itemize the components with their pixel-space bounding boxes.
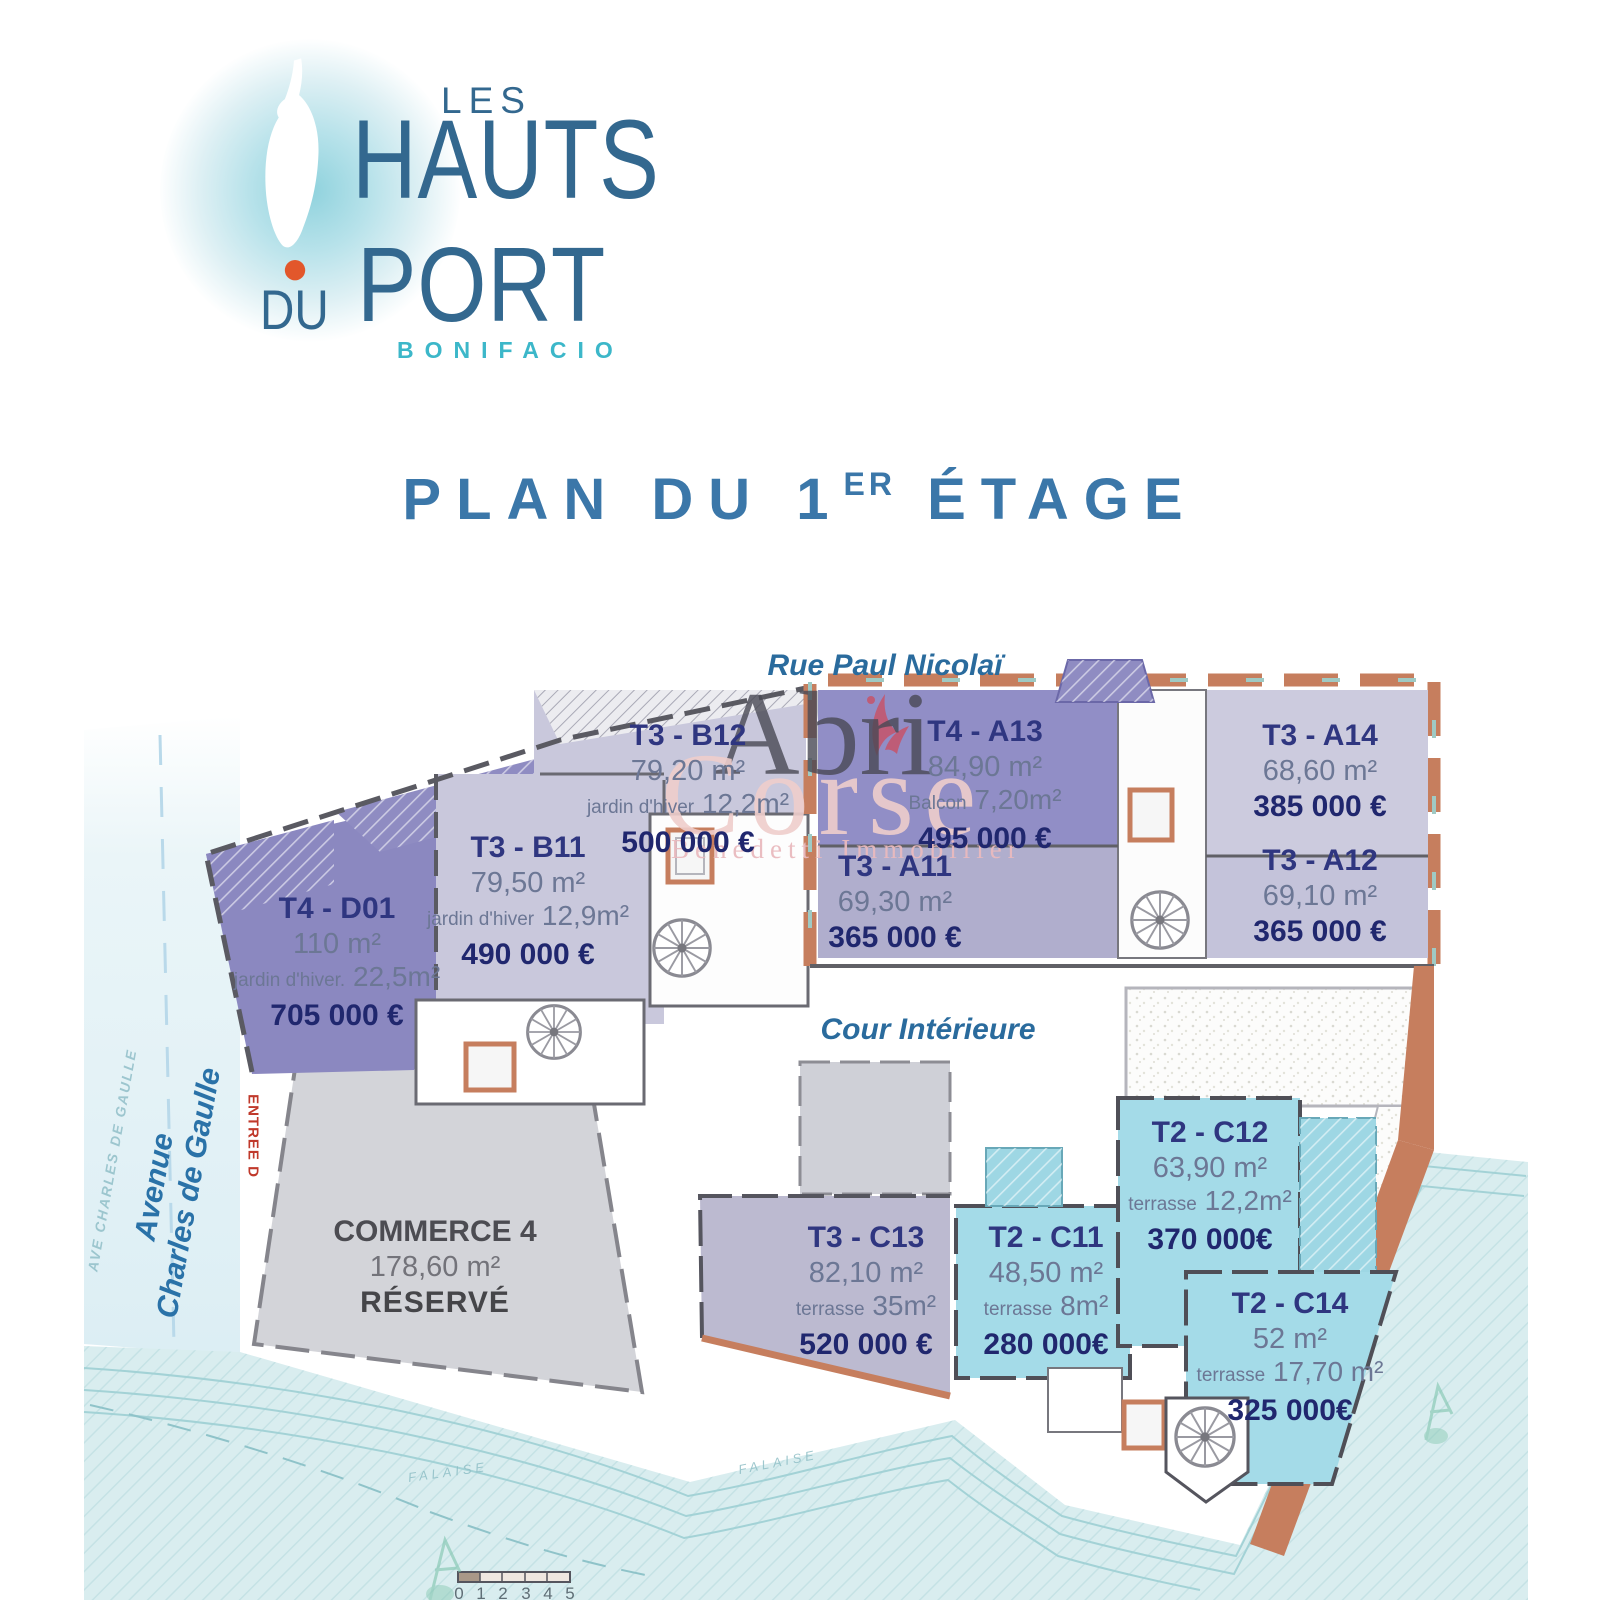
unit-extra: jardin d'hiver. 22,5m² [234,961,440,997]
unit-area: 63,90 m² [1128,1151,1292,1185]
unit-price: 520 000 € [796,1326,936,1364]
scale-tick-2: 2 [498,1584,507,1600]
unit-extra-value: 7,20m² [974,784,1061,815]
scale-tick-1: 1 [476,1584,485,1600]
unit-extra: Balcon 7,20m² [908,784,1061,820]
unit-price: 325 000€ [1197,1392,1384,1430]
unit-price: 370 000€ [1128,1221,1292,1259]
unit-extra: terrasse 8m² [983,1290,1108,1326]
terrace-hatch-c11 [986,1148,1062,1206]
unit-extra-label: terrasse [1197,1365,1266,1386]
unit-area: 68,60 m² [1253,754,1386,788]
entrance-hall-d [416,1000,644,1104]
scale-tick-3: 3 [521,1584,530,1600]
unit-price: 705 000 € [234,997,440,1035]
unit-extra-value: 35m² [872,1290,936,1321]
stair-core-a [1118,690,1206,958]
unit-code: COMMERCE 4 [333,1214,536,1250]
street-label-rue-paul-nicolai: Rue Paul Nicolaï [767,649,1002,683]
unit-area: 69,30 m² [828,885,961,919]
unit-price: 280 000€ [983,1326,1108,1364]
unit-extra-label: terrasse [796,1299,865,1320]
unit-extra-label: terrasse [1128,1194,1197,1215]
unit-code: T3 - B11 [427,830,629,866]
unit-extra-value: 12,2m² [702,788,789,819]
unit-code: T4 - A13 [908,714,1061,750]
unit-area: 79,20 m² [587,754,789,788]
unit-price: 490 000 € [427,936,629,974]
unit-label-t4-a13: T4 - A13 84,90 m² Balcon 7,20m² 495 000 … [908,714,1061,858]
unit-label-t3-c13: T3 - C13 82,10 m² terrasse 35m² 520 000 … [796,1220,936,1364]
unit-code: T3 - A11 [828,849,961,885]
unit-extra-value: 17,70 m² [1273,1356,1384,1387]
unit-area: 69,10 m² [1253,879,1386,913]
unit-area: 178,60 m² [333,1250,536,1284]
unit-label-t4-d01: T4 - D01 110 m² jardin d'hiver. 22,5m² 7… [234,891,440,1035]
unit-label-t2-c12: T2 - C12 63,90 m² terrasse 12,2m² 370 00… [1128,1115,1292,1259]
unit-extra-label: jardin d'hiver. [234,970,345,991]
unit-label-t3-b11: T3 - B11 79,50 m² jardin d'hiver 12,9m² … [427,830,629,974]
floor-plan-page: LES HAUTS DU PORT BONIFACIO PLAN DU 1ER … [0,0,1600,1600]
unit-extra: jardin d'hiver 12,2m² [587,788,789,824]
unit-area: 84,90 m² [908,750,1061,784]
unit-area: 52 m² [1197,1322,1384,1356]
watermark-flower-icon [855,690,913,762]
scale-tick-5: 5 [565,1584,574,1600]
unit-label-t2-c11: T2 - C11 48,50 m² terrasse 8m² 280 000€ [983,1220,1108,1364]
unit-area: 48,50 m² [983,1256,1108,1290]
unit-label-commerce-4: COMMERCE 4 178,60 m² RÉSERVÉ [333,1214,536,1322]
unit-extra-label: terrasse [984,1299,1053,1320]
unit-price: 365 000 € [828,919,961,957]
unit-extra: terrasse 17,70 m² [1197,1356,1384,1392]
unit-code: T2 - C11 [983,1220,1108,1256]
courtyard-label: Cour Intérieure [820,1013,1035,1047]
unit-code: T2 - C14 [1197,1286,1384,1322]
unit-extra-label: jardin d'hiver [587,797,694,818]
unit-code: T2 - C12 [1128,1115,1292,1151]
terrace-speckled [1126,988,1426,1106]
unit-extra: terrasse 12,2m² [1128,1185,1292,1221]
scale-bar [458,1572,570,1582]
unit-label-t2-c14: T2 - C14 52 m² terrasse 17,70 m² 325 000… [1197,1286,1384,1430]
entrance-d-label: ENTREE D [245,1094,262,1178]
scale-tick-0: 0 [454,1584,463,1600]
unit-extra-value: 8m² [1060,1290,1108,1321]
unit-extra-label: Balcon [908,793,966,814]
unit-code: T3 - B12 [587,718,789,754]
unit-extra-value: 12,2m² [1205,1185,1292,1216]
unit-code: T3 - C13 [796,1220,936,1256]
unit-code: T3 - A14 [1253,718,1386,754]
unit-extra-value: 12,9m² [542,900,629,931]
unit-label-t3-a11: T3 - A11 69,30 m² 365 000 € [828,849,961,957]
unit-label-t3-a14: T3 - A14 68,60 m² 385 000 € [1253,718,1386,826]
terrace-gray [800,1062,950,1194]
unit-extra: jardin d'hiver 12,9m² [427,900,629,936]
scale-tick-4: 4 [543,1584,552,1600]
unit-code: T3 - A12 [1253,843,1386,879]
unit-extra: terrasse 35m² [796,1290,936,1326]
unit-area: 79,50 m² [427,866,629,900]
unit-label-t3-a12: T3 - A12 69,10 m² 365 000 € [1253,843,1386,951]
unit-price: 365 000 € [1253,913,1386,951]
unit-area: 82,10 m² [796,1256,936,1290]
unit-extra-value: 22,5m² [353,961,440,992]
unit-code: T4 - D01 [234,891,440,927]
unit-price: 385 000 € [1253,788,1386,826]
unit-area: 110 m² [234,927,440,961]
unit-status: RÉSERVÉ [333,1284,536,1322]
unit-extra-label: jardin d'hiver [427,909,534,930]
